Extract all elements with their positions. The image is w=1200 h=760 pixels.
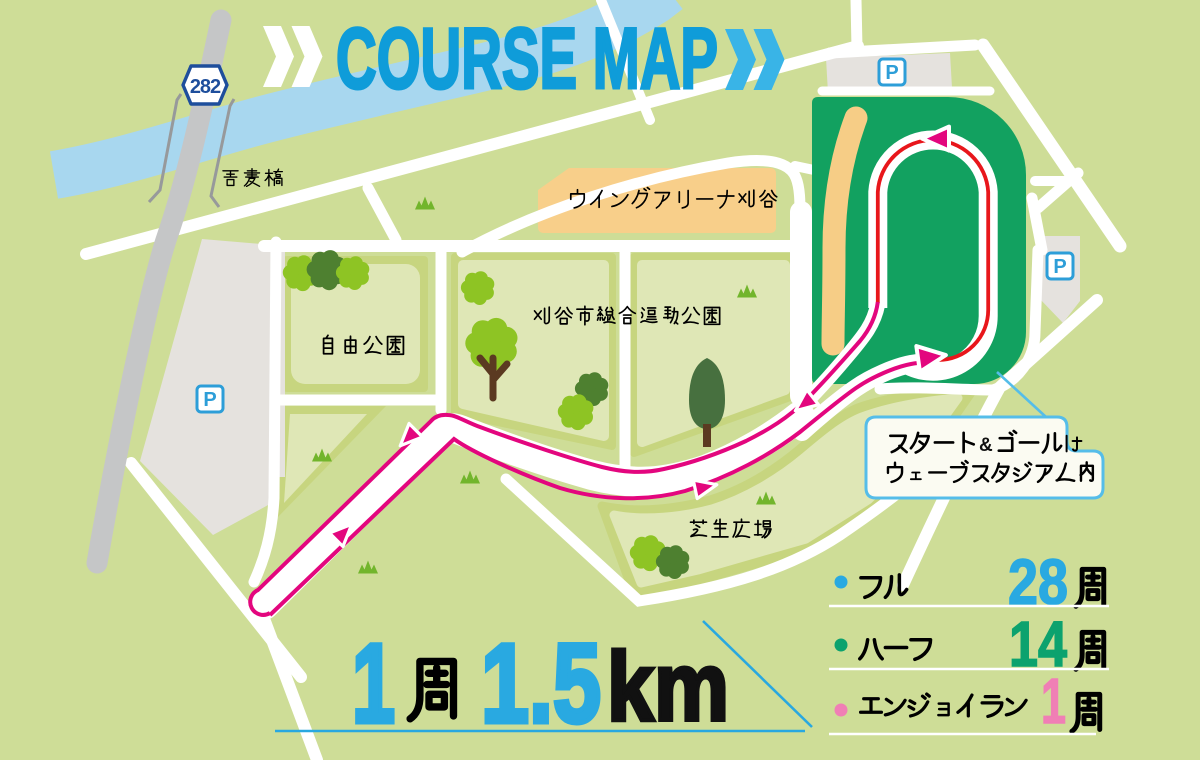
svg-text:&: & xyxy=(979,435,993,456)
svg-text:1.5: 1.5 xyxy=(481,621,601,746)
svg-text:P: P xyxy=(885,62,898,84)
svg-text:P: P xyxy=(203,389,216,411)
svg-text:1: 1 xyxy=(1041,665,1066,737)
svg-text:COURSE MAP: COURSE MAP xyxy=(336,11,718,107)
svg-text:P: P xyxy=(1053,256,1066,278)
svg-text:km: km xyxy=(607,632,729,741)
svg-text:1: 1 xyxy=(352,621,395,746)
svg-text:282: 282 xyxy=(190,76,221,98)
